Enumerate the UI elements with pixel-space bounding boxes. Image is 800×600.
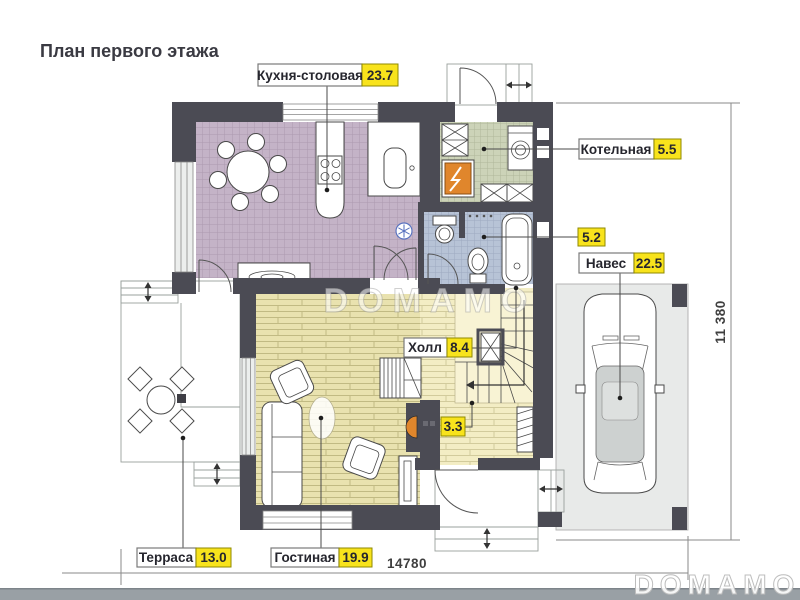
washing-machine [508,126,533,170]
bathtub [502,214,532,285]
terrace-roof-edge [181,303,240,407]
terrace-area [121,281,240,486]
wall-slit-window [537,146,549,158]
carport-area [556,284,688,530]
room-area: 22.5 [636,256,663,271]
room-area: 8.4 [450,340,469,355]
shower-partition [459,212,465,238]
room-name: Котельная [581,142,652,157]
wall-slit-window [537,222,549,238]
room-name: Терраса [139,550,194,565]
bookshelf [380,358,421,398]
car-mirror-right [655,385,664,393]
watermark-center: DOMAMO [324,282,537,320]
label-terrace: Терраса 13.0 [137,436,231,567]
toilet [433,216,456,243]
terrace-steps-top [121,281,178,303]
wall-slit-window [537,128,549,140]
fireplace [406,403,440,452]
room-area: 5.5 [658,142,677,157]
page-title: План первого этажа [40,41,220,61]
ventilation-snowflake-icon [396,223,412,239]
car-mirror-left [576,385,585,393]
watermark-corner: DOMAMO [634,569,800,600]
dimension-width: 14780 [387,556,427,571]
entry-porch-bottom [435,470,564,551]
dimension-height: 11 380 [713,300,728,344]
room-area: 23.7 [367,68,393,83]
sofa [262,402,302,508]
kitchen-sink [384,148,406,188]
entrance-door-bottom [435,470,478,513]
boiler-unit [442,160,474,197]
room-name: Холл [408,340,442,355]
room-name: Кухня-столовая [257,68,363,83]
bidet [468,248,488,283]
floor-plan-page: 14780 11 380 DOMAMO Кухня-столовая 23.7 … [0,0,800,600]
stove [318,156,342,184]
room-area: 5.2 [582,230,601,245]
storage-cabinet [442,124,468,156]
room-area: 19.9 [342,550,368,565]
floor-plan-drawing: 14780 11 380 DOMAMO Кухня-столовая 23.7 … [0,0,800,600]
kitchen-top-window [283,104,378,120]
tv-unit [399,456,417,506]
terrace-column [177,394,186,403]
room-area: 3.3 [444,419,463,434]
radiator [517,407,533,452]
living-left-window [242,358,255,455]
room-name: Гостиная [274,550,335,565]
lower-cabinets [481,184,533,202]
room-area: 13.0 [200,550,226,565]
room-name: Навес [586,256,627,271]
stairs-closet [478,330,503,364]
living-bottom-window [263,511,352,529]
kitchen-left-window [175,162,193,272]
entrance-door-top [460,68,496,104]
